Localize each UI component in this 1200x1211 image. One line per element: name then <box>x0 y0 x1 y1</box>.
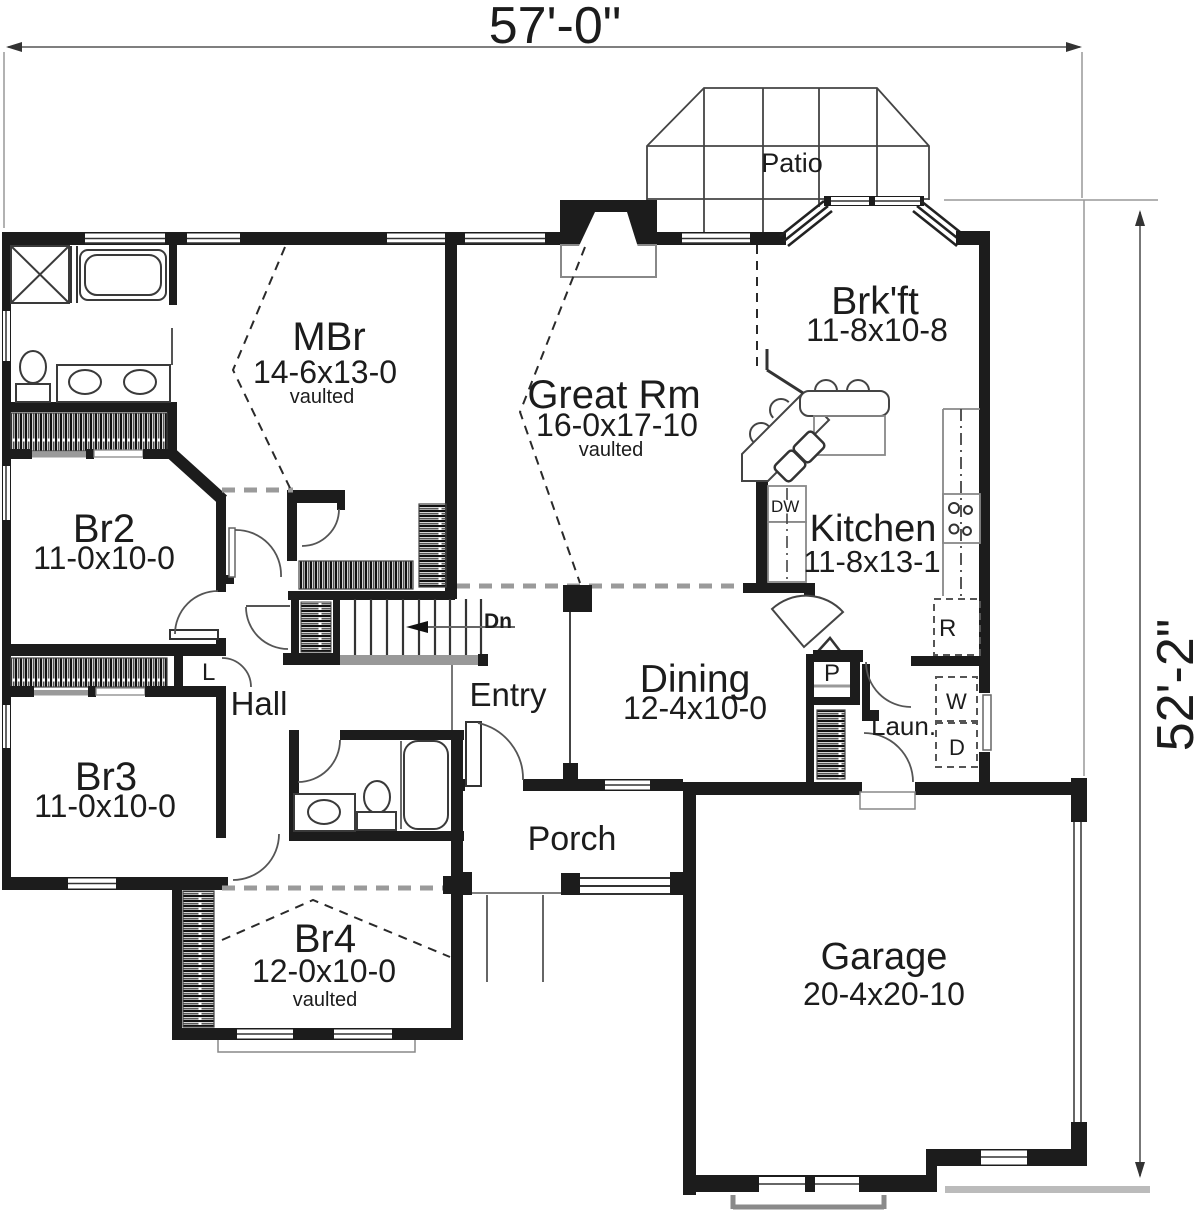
svg-text:Patio: Patio <box>761 148 823 178</box>
svg-text:12-4x10-0: 12-4x10-0 <box>623 690 767 726</box>
svg-text:Porch: Porch <box>528 820 617 858</box>
svg-text:DW: DW <box>771 497 799 516</box>
svg-text:D: D <box>949 735 965 760</box>
svg-text:Dn: Dn <box>484 610 512 633</box>
svg-text:52'-2": 52'-2" <box>1147 619 1200 751</box>
svg-text:Laun.: Laun. <box>871 711 936 741</box>
svg-text:vaulted: vaulted <box>579 439 644 461</box>
svg-text:R: R <box>939 615 956 642</box>
svg-text:vaulted: vaulted <box>290 386 355 408</box>
svg-text:16-0x17-10: 16-0x17-10 <box>536 407 698 443</box>
svg-text:11-0x10-0: 11-0x10-0 <box>34 788 176 824</box>
svg-text:11-0x10-0: 11-0x10-0 <box>33 540 175 576</box>
svg-text:57'-0": 57'-0" <box>489 0 621 55</box>
svg-text:W: W <box>946 689 967 714</box>
svg-text:MBr: MBr <box>292 315 365 359</box>
svg-text:Garage: Garage <box>821 936 948 978</box>
svg-text:L: L <box>202 659 215 686</box>
svg-text:14-6x13-0: 14-6x13-0 <box>253 354 397 390</box>
svg-text:11-8x10-8: 11-8x10-8 <box>806 312 948 348</box>
svg-text:vaulted: vaulted <box>293 989 358 1011</box>
svg-text:20-4x20-10: 20-4x20-10 <box>803 976 965 1012</box>
svg-text:11-8x13-1: 11-8x13-1 <box>803 544 940 579</box>
svg-text:12-0x10-0: 12-0x10-0 <box>252 953 396 989</box>
svg-text:Hall: Hall <box>231 685 288 722</box>
svg-text:P: P <box>824 660 840 687</box>
svg-text:Entry: Entry <box>469 676 547 713</box>
